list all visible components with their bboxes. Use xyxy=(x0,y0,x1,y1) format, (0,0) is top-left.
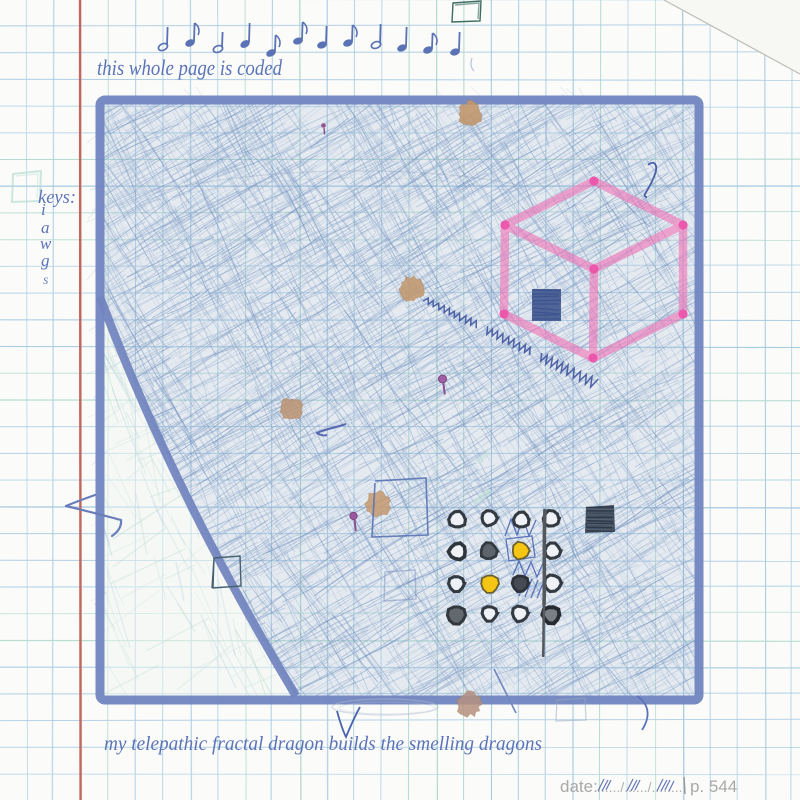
svg-text:my telepathic fractal dragon b: my telepathic fractal dragon builds the … xyxy=(104,733,542,755)
svg-text:s: s xyxy=(43,273,49,288)
svg-text:date:: date: xyxy=(560,777,598,796)
svg-text:p. 544: p. 544 xyxy=(690,777,737,796)
svg-text:i: i xyxy=(41,200,46,219)
svg-text:g: g xyxy=(41,251,50,270)
svg-text:this whole page is coded: this whole page is coded xyxy=(97,55,283,80)
